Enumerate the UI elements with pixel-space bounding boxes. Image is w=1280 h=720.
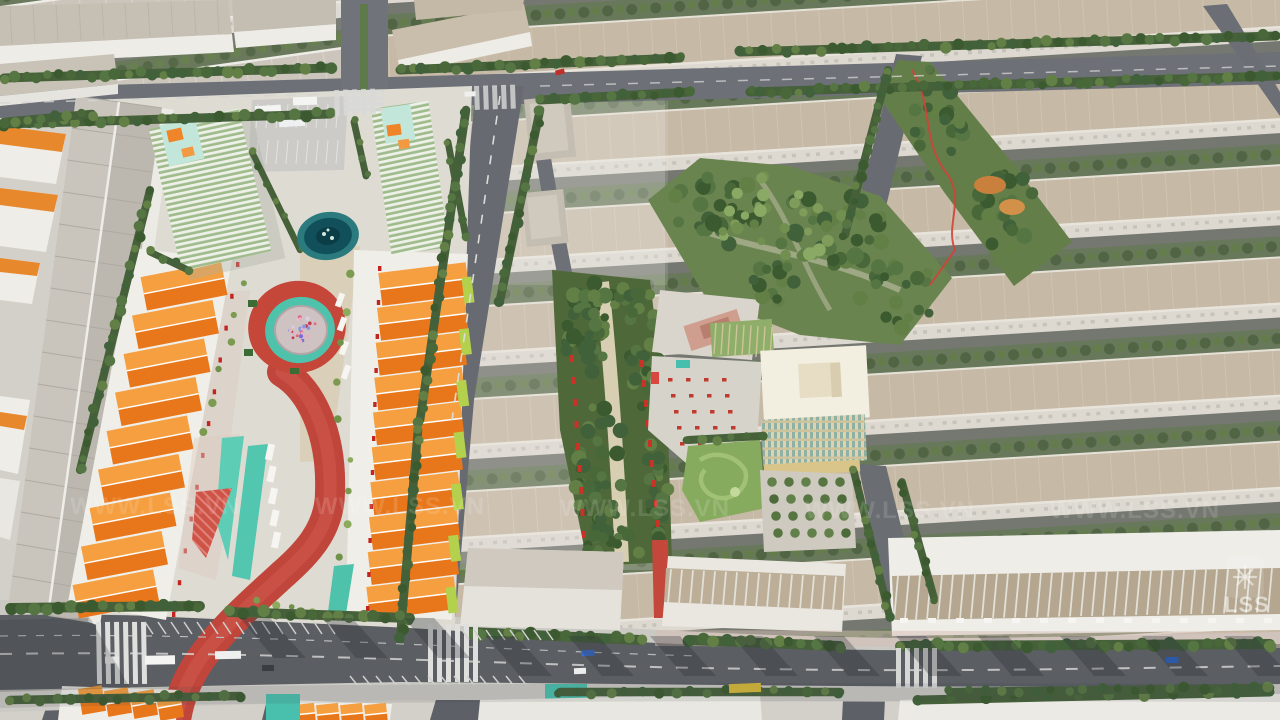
svg-text:WWW.LSS.VN: WWW.LSS.VN [805,497,975,524]
svg-text:WWW.LSS.VN: WWW.LSS.VN [70,493,240,520]
svg-text:WWW.LSS.VN: WWW.LSS.VN [1050,497,1220,524]
svg-text:LSS: LSS [1224,592,1270,617]
svg-text:WWW.LSS.VN: WWW.LSS.VN [560,495,730,522]
svg-text:WWW.LSS.VN: WWW.LSS.VN [315,493,485,520]
